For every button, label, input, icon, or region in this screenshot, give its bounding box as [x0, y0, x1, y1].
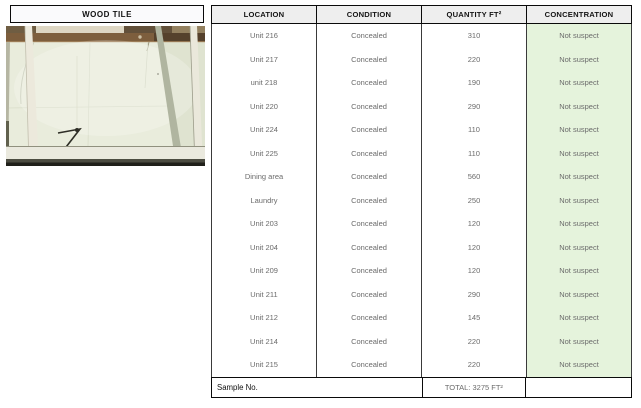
header-concentration: CONCENTRATION: [526, 6, 631, 23]
cell-location: Unit 203: [212, 212, 317, 236]
cell-concentration: Not suspect: [527, 212, 631, 236]
cell-condition: Concealed: [317, 236, 422, 260]
table-footer-row: Sample No. TOTAL: 3275 FT²: [211, 377, 632, 398]
cell-concentration: Not suspect: [527, 48, 631, 72]
header-condition: CONDITION: [316, 6, 421, 23]
cell-quantity: 120: [422, 212, 527, 236]
cell-location: Laundry: [212, 189, 317, 213]
cell-concentration: Not suspect: [527, 330, 631, 354]
cell-concentration: Not suspect: [527, 165, 631, 189]
cell-location: Dining area: [212, 165, 317, 189]
cell-condition: Concealed: [317, 48, 422, 72]
cell-concentration: Not suspect: [527, 259, 631, 283]
cell-quantity: 110: [422, 118, 527, 142]
cell-condition: Concealed: [317, 189, 422, 213]
table-row: Dining areaConcealed560Not suspect: [212, 165, 631, 189]
cell-condition: Concealed: [317, 330, 422, 354]
cell-condition: Concealed: [317, 353, 422, 377]
footer-empty-cell: [526, 378, 631, 397]
cell-quantity: 110: [422, 142, 527, 166]
cell-concentration: Not suspect: [527, 142, 631, 166]
cell-quantity: 220: [422, 353, 527, 377]
cell-concentration: Not suspect: [527, 283, 631, 307]
cell-quantity: 560: [422, 165, 527, 189]
cell-location: Unit 217: [212, 48, 317, 72]
table-row: Unit 224Concealed110Not suspect: [212, 118, 631, 142]
cell-location: Unit 220: [212, 95, 317, 119]
cell-location: Unit 216: [212, 24, 317, 48]
cell-location: Unit 212: [212, 306, 317, 330]
table-row: Unit 203Concealed120Not suspect: [212, 212, 631, 236]
cell-concentration: Not suspect: [527, 236, 631, 260]
table-row: Unit 215Concealed220Not suspect: [212, 353, 631, 377]
cell-location: Unit 204: [212, 236, 317, 260]
cell-quantity: 310: [422, 24, 527, 48]
table-row: Unit 217Concealed220Not suspect: [212, 48, 631, 72]
cell-quantity: 120: [422, 259, 527, 283]
cell-concentration: Not suspect: [527, 24, 631, 48]
cell-condition: Concealed: [317, 212, 422, 236]
cell-condition: Concealed: [317, 24, 422, 48]
cell-location: Unit 215: [212, 353, 317, 377]
cell-quantity: 120: [422, 236, 527, 260]
cell-concentration: Not suspect: [527, 189, 631, 213]
table-row: Unit 212Concealed145Not suspect: [212, 306, 631, 330]
material-title: WOOD TILE: [82, 10, 132, 19]
cell-location: Unit 224: [212, 118, 317, 142]
table-row: Unit 204Concealed120Not suspect: [212, 236, 631, 260]
cell-condition: Concealed: [317, 306, 422, 330]
cell-location: Unit 214: [212, 330, 317, 354]
table-row: Unit 225Concealed110Not suspect: [212, 142, 631, 166]
table-row: Unit 220Concealed290Not suspect: [212, 95, 631, 119]
cell-quantity: 290: [422, 283, 527, 307]
report-page: WOOD TILE: [0, 0, 641, 408]
total-quantity: TOTAL: 3275 FT²: [422, 378, 527, 397]
material-title-box: WOOD TILE: [10, 5, 204, 23]
sample-no-label: Sample No.: [212, 378, 422, 397]
cell-condition: Concealed: [317, 142, 422, 166]
cell-location: Unit 209: [212, 259, 317, 283]
cell-location: Unit 211: [212, 283, 317, 307]
table-row: LaundryConcealed250Not suspect: [212, 189, 631, 213]
table-row: Unit 216Concealed310Not suspect: [212, 24, 631, 48]
cell-location: Unit 225: [212, 142, 317, 166]
cell-concentration: Not suspect: [527, 353, 631, 377]
header-location: LOCATION: [212, 6, 316, 23]
cell-condition: Concealed: [317, 118, 422, 142]
cell-condition: Concealed: [317, 165, 422, 189]
cell-concentration: Not suspect: [527, 95, 631, 119]
cell-concentration: Not suspect: [527, 306, 631, 330]
cell-location: unit 218: [212, 71, 317, 95]
cell-condition: Concealed: [317, 95, 422, 119]
ceiling-photo-art: [6, 26, 205, 166]
cell-quantity: 190: [422, 71, 527, 95]
cell-condition: Concealed: [317, 71, 422, 95]
cell-quantity: 145: [422, 306, 527, 330]
table-row: unit 218Concealed190Not suspect: [212, 71, 631, 95]
cell-condition: Concealed: [317, 283, 422, 307]
table-row: Unit 211Concealed290Not suspect: [212, 283, 631, 307]
cell-quantity: 220: [422, 48, 527, 72]
cell-quantity: 250: [422, 189, 527, 213]
table-header-row: LOCATION CONDITION QUANTITY FT² CONCENTR…: [211, 5, 632, 24]
table-body: Unit 216Concealed310Not suspectUnit 217C…: [211, 24, 632, 377]
table-row: Unit 209Concealed120Not suspect: [212, 259, 631, 283]
cell-concentration: Not suspect: [527, 71, 631, 95]
cell-quantity: 220: [422, 330, 527, 354]
cell-quantity: 290: [422, 95, 527, 119]
table-row: Unit 214Concealed220Not suspect: [212, 330, 631, 354]
cell-concentration: Not suspect: [527, 118, 631, 142]
header-quantity: QUANTITY FT²: [421, 6, 526, 23]
ceiling-photo: [6, 26, 205, 166]
cell-condition: Concealed: [317, 259, 422, 283]
survey-table: LOCATION CONDITION QUANTITY FT² CONCENTR…: [211, 5, 632, 398]
